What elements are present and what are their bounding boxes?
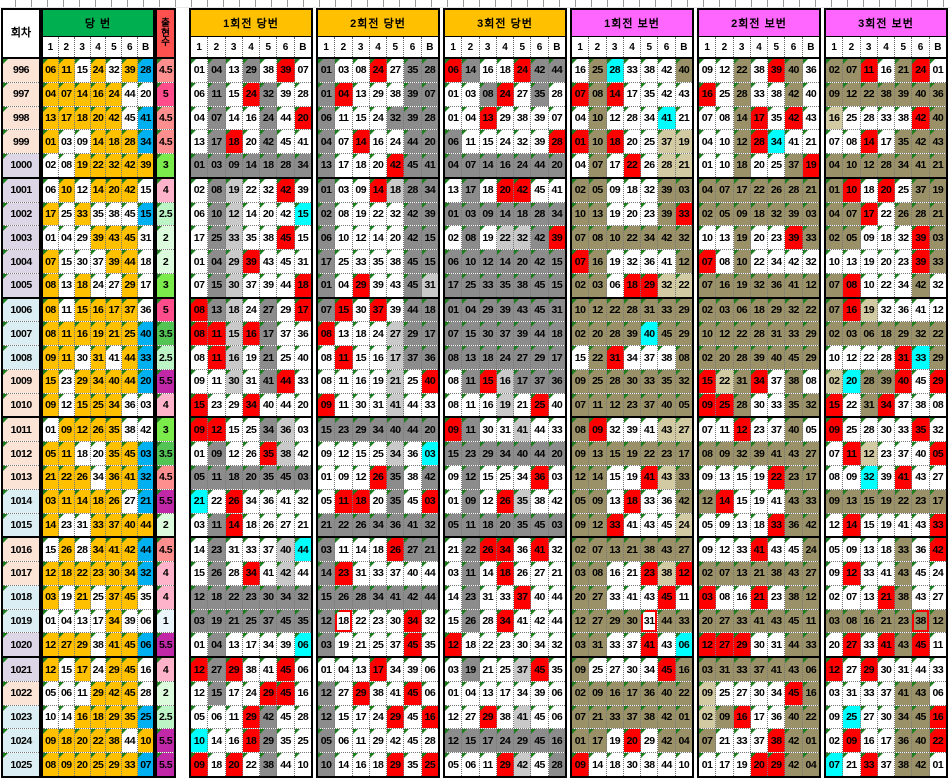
num-cell[interactable]: 35 <box>895 130 912 153</box>
num-cell[interactable]: 29 <box>676 322 692 345</box>
num-cell[interactable]: 27 <box>122 490 138 513</box>
num-cell[interactable]: 04 <box>208 59 225 82</box>
num-cell[interactable]: 16 <box>803 682 819 705</box>
num-cell[interactable]: 38 <box>895 107 912 130</box>
num-cell[interactable]: 19 <box>497 394 514 417</box>
num-cell[interactable]: 44 <box>531 418 548 441</box>
num-cell[interactable]: 31 <box>861 394 878 417</box>
num-cell[interactable]: 39 <box>785 203 802 226</box>
num-cell[interactable]: 20 <box>751 154 768 177</box>
num-cell[interactable]: 39 <box>658 179 675 202</box>
num-cell[interactable]: 42 <box>658 729 675 752</box>
num-cell[interactable]: 23 <box>751 418 768 441</box>
num-cell[interactable]: 25 <box>843 418 860 441</box>
num-cell[interactable]: 43 <box>895 633 912 656</box>
num-cell[interactable]: 34 <box>641 226 658 249</box>
num-cell[interactable]: 40 <box>138 322 153 345</box>
num-cell[interactable]: 17 <box>370 658 387 681</box>
num-cell[interactable]: 17 <box>43 203 59 226</box>
num-cell[interactable]: 04 <box>803 753 819 776</box>
num-cell[interactable]: 08 <box>43 753 59 776</box>
count-cell[interactable]: 3 <box>157 154 174 177</box>
num-cell[interactable]: 33 <box>930 658 946 681</box>
num-cell[interactable]: 34 <box>277 586 294 609</box>
num-cell[interactable]: 14 <box>191 538 208 561</box>
num-cell[interactable]: 20 <box>138 83 153 106</box>
num-cell[interactable]: 23 <box>641 203 658 226</box>
num-cell[interactable]: 25 <box>716 682 733 705</box>
num-cell[interactable]: 21 <box>930 154 946 177</box>
num-cell[interactable]: 16 <box>589 250 606 273</box>
num-cell[interactable]: 15 <box>607 466 624 489</box>
num-cell[interactable]: 27 <box>843 658 860 681</box>
num-cell[interactable]: 02 <box>699 562 716 585</box>
num-cell[interactable]: 03 <box>335 59 352 82</box>
num-cell[interactable]: 34 <box>895 154 912 177</box>
num-cell[interactable]: 03 <box>138 442 153 465</box>
num-cell[interactable]: 14 <box>462 59 479 82</box>
num-cell[interactable]: 14 <box>43 514 59 537</box>
num-cell[interactable]: 34 <box>641 107 658 130</box>
num-cell[interactable]: 15 <box>75 299 91 322</box>
num-cell[interactable]: 26 <box>514 562 531 585</box>
count-cell[interactable]: 2 <box>157 682 174 705</box>
num-cell[interactable]: 32 <box>676 370 692 393</box>
num-cell[interactable]: 19 <box>607 250 624 273</box>
num-cell[interactable]: 21 <box>480 658 497 681</box>
num-cell[interactable]: 10 <box>699 226 716 249</box>
num-cell[interactable]: 19 <box>75 154 91 177</box>
num-cell[interactable]: 14 <box>716 490 733 513</box>
num-cell[interactable]: 23 <box>768 586 785 609</box>
num-cell[interactable]: 45 <box>912 706 929 729</box>
num-cell[interactable]: 06 <box>138 633 153 656</box>
num-cell[interactable]: 27 <box>387 322 404 345</box>
num-cell[interactable]: 24 <box>91 658 107 681</box>
num-cell[interactable]: 03 <box>699 658 716 681</box>
num-cell[interactable]: 44 <box>138 538 153 561</box>
num-cell[interactable]: 21 <box>676 154 692 177</box>
num-cell[interactable]: 03 <box>295 418 311 441</box>
num-cell[interactable]: 24 <box>514 154 531 177</box>
num-cell[interactable]: 20 <box>260 203 277 226</box>
num-cell[interactable]: 07 <box>826 274 843 297</box>
num-cell[interactable]: 16 <box>607 682 624 705</box>
num-cell[interactable]: 40 <box>930 107 946 130</box>
num-cell[interactable]: 13 <box>480 682 497 705</box>
num-cell[interactable]: 31 <box>295 250 311 273</box>
num-cell[interactable]: 07 <box>589 538 606 561</box>
num-cell[interactable]: 04 <box>445 154 462 177</box>
num-cell[interactable]: 09 <box>191 418 208 441</box>
num-cell[interactable]: 18 <box>734 154 751 177</box>
num-cell[interactable]: 15 <box>335 706 352 729</box>
num-cell[interactable]: 02 <box>699 346 716 369</box>
num-cell[interactable]: 11 <box>208 466 225 489</box>
num-cell[interactable]: 09 <box>572 514 589 537</box>
num-cell[interactable]: 28 <box>549 83 565 106</box>
num-cell[interactable]: 40 <box>260 394 277 417</box>
num-cell[interactable]: 16 <box>353 370 370 393</box>
num-cell[interactable]: 22 <box>226 586 243 609</box>
num-cell[interactable]: 44 <box>531 322 548 345</box>
count-cell[interactable]: 5.5 <box>157 729 174 752</box>
num-cell[interactable]: 35 <box>122 706 138 729</box>
num-cell[interactable]: 45 <box>122 658 138 681</box>
num-cell[interactable]: 14 <box>480 154 497 177</box>
num-cell[interactable]: 40 <box>912 729 929 752</box>
num-cell[interactable]: 25 <box>243 610 260 633</box>
num-cell[interactable]: 28 <box>531 203 548 226</box>
num-cell[interactable]: 17 <box>260 322 277 345</box>
num-cell[interactable]: 12 <box>826 514 843 537</box>
num-cell[interactable]: 43 <box>785 658 802 681</box>
num-cell[interactable]: 17 <box>549 346 565 369</box>
num-cell[interactable]: 18 <box>75 442 91 465</box>
num-cell[interactable]: 28 <box>658 154 675 177</box>
num-cell[interactable]: 19 <box>243 346 260 369</box>
num-cell[interactable]: 42 <box>912 130 929 153</box>
num-cell[interactable]: 42 <box>785 107 802 130</box>
num-cell[interactable]: 07 <box>699 107 716 130</box>
num-cell[interactable]: 42 <box>404 226 421 249</box>
num-cell[interactable]: 32 <box>734 442 751 465</box>
num-cell[interactable]: 26 <box>59 538 75 561</box>
num-cell[interactable]: 11 <box>59 299 75 322</box>
round-cell[interactable]: 1019 <box>3 610 39 633</box>
num-cell[interactable]: 12 <box>353 226 370 249</box>
num-cell[interactable]: 29 <box>768 753 785 776</box>
num-cell[interactable]: 34 <box>497 538 514 561</box>
num-cell[interactable]: 31 <box>768 322 785 345</box>
num-cell[interactable]: 29 <box>861 658 878 681</box>
num-cell[interactable]: 29 <box>387 706 404 729</box>
num-cell[interactable]: 07 <box>318 299 335 322</box>
num-cell[interactable]: 36 <box>803 59 819 82</box>
num-cell[interactable]: 17 <box>497 682 514 705</box>
num-cell[interactable]: 34 <box>404 610 421 633</box>
num-cell[interactable]: 13 <box>226 633 243 656</box>
num-cell[interactable]: 38 <box>641 753 658 776</box>
num-cell[interactable]: 36 <box>138 299 153 322</box>
num-cell[interactable]: 22 <box>878 203 895 226</box>
num-cell[interactable]: 11 <box>226 706 243 729</box>
num-cell[interactable]: 12 <box>480 490 497 513</box>
num-cell[interactable]: 28 <box>422 59 438 82</box>
num-cell[interactable]: 33 <box>226 226 243 249</box>
num-cell[interactable]: 33 <box>607 586 624 609</box>
num-cell[interactable]: 26 <box>226 490 243 513</box>
num-cell[interactable]: 04 <box>59 226 75 249</box>
num-cell[interactable]: 29 <box>353 274 370 297</box>
num-cell[interactable]: 12 <box>699 490 716 513</box>
num-cell[interactable]: 18 <box>607 130 624 153</box>
num-cell[interactable]: 25 <box>138 706 153 729</box>
num-cell[interactable]: 03 <box>549 514 565 537</box>
num-cell[interactable]: 05 <box>43 682 59 705</box>
num-cell[interactable]: 24 <box>912 59 929 82</box>
num-cell[interactable]: 19 <box>930 179 946 202</box>
num-cell[interactable]: 08 <box>676 346 692 369</box>
num-cell[interactable]: 21 <box>445 538 462 561</box>
num-cell[interactable]: 34 <box>624 346 641 369</box>
num-cell[interactable]: 24 <box>370 59 387 82</box>
num-cell[interactable]: 41 <box>295 130 311 153</box>
num-cell[interactable]: 28 <box>861 107 878 130</box>
num-cell[interactable]: 30 <box>624 658 641 681</box>
num-cell[interactable]: 43 <box>912 586 929 609</box>
num-cell[interactable]: 17 <box>751 706 768 729</box>
num-cell[interactable]: 03 <box>191 514 208 537</box>
num-cell[interactable]: 16 <box>716 274 733 297</box>
num-cell[interactable]: 41 <box>658 107 675 130</box>
num-cell[interactable]: 21 <box>226 610 243 633</box>
num-cell[interactable]: 33 <box>243 538 260 561</box>
num-cell[interactable]: 29 <box>803 346 819 369</box>
num-cell[interactable]: 02 <box>699 299 716 322</box>
num-cell[interactable]: 18 <box>497 562 514 585</box>
num-cell[interactable]: 16 <box>226 346 243 369</box>
round-cell[interactable]: 1022 <box>3 682 39 705</box>
num-cell[interactable]: 33 <box>930 514 946 537</box>
num-cell[interactable]: 27 <box>404 538 421 561</box>
num-cell[interactable]: 45 <box>531 729 548 752</box>
num-cell[interactable]: 27 <box>716 610 733 633</box>
num-cell[interactable]: 21 <box>589 706 606 729</box>
num-cell[interactable]: 23 <box>768 226 785 249</box>
num-cell[interactable]: 14 <box>353 538 370 561</box>
count-cell[interactable]: 4 <box>157 586 174 609</box>
num-cell[interactable]: 12 <box>734 130 751 153</box>
num-cell[interactable]: 06 <box>422 658 438 681</box>
num-cell[interactable]: 12 <box>318 706 335 729</box>
num-cell[interactable]: 39 <box>912 226 929 249</box>
num-cell[interactable]: 36 <box>768 274 785 297</box>
num-cell[interactable]: 34 <box>751 370 768 393</box>
num-cell[interactable]: 09 <box>826 418 843 441</box>
num-cell[interactable]: 41 <box>624 586 641 609</box>
num-cell[interactable]: 05 <box>676 394 692 417</box>
num-cell[interactable]: 01 <box>676 706 692 729</box>
num-cell[interactable]: 19 <box>480 226 497 249</box>
num-cell[interactable]: 15 <box>734 490 751 513</box>
num-cell[interactable]: 42 <box>277 562 294 585</box>
num-cell[interactable]: 17 <box>387 346 404 369</box>
num-cell[interactable]: 17 <box>335 154 352 177</box>
num-cell[interactable]: 09 <box>208 442 225 465</box>
num-cell[interactable]: 09 <box>75 130 91 153</box>
num-cell[interactable]: 38 <box>768 729 785 752</box>
num-cell[interactable]: 34 <box>531 633 548 656</box>
num-cell[interactable]: 24 <box>243 299 260 322</box>
round-cell[interactable]: 1003 <box>3 226 39 249</box>
num-cell[interactable]: 20 <box>878 250 895 273</box>
num-cell[interactable]: 33 <box>658 299 675 322</box>
num-cell[interactable]: 27 <box>514 83 531 106</box>
num-cell[interactable]: 32 <box>912 322 929 345</box>
num-cell[interactable]: 12 <box>676 562 692 585</box>
num-cell[interactable]: 42 <box>658 706 675 729</box>
num-cell[interactable]: 29 <box>260 682 277 705</box>
num-cell[interactable]: 06 <box>445 250 462 273</box>
count-cell[interactable]: 4 <box>157 179 174 202</box>
num-cell[interactable]: 12 <box>826 658 843 681</box>
num-cell[interactable]: 07 <box>572 226 589 249</box>
num-cell[interactable]: 11 <box>59 442 75 465</box>
num-cell[interactable]: 18 <box>208 586 225 609</box>
num-cell[interactable]: 14 <box>75 490 91 513</box>
num-cell[interactable]: 33 <box>607 706 624 729</box>
num-cell[interactable]: 30 <box>353 299 370 322</box>
num-cell[interactable]: 32 <box>295 586 311 609</box>
num-cell[interactable]: 29 <box>353 418 370 441</box>
num-cell[interactable]: 41 <box>624 514 641 537</box>
round-cell[interactable]: 1021 <box>3 658 39 681</box>
num-cell[interactable]: 09 <box>843 729 860 752</box>
num-cell[interactable]: 35 <box>531 83 548 106</box>
num-cell[interactable]: 09 <box>191 753 208 776</box>
num-cell[interactable]: 06 <box>59 682 75 705</box>
num-cell[interactable]: 38 <box>658 562 675 585</box>
num-cell[interactable]: 29 <box>641 729 658 752</box>
num-cell[interactable]: 20 <box>549 154 565 177</box>
num-cell[interactable]: 34 <box>387 442 404 465</box>
num-cell[interactable]: 45 <box>912 633 929 656</box>
round-cell[interactable]: 1025 <box>3 753 39 776</box>
num-cell[interactable]: 24 <box>930 562 946 585</box>
num-cell[interactable]: 34 <box>370 514 387 537</box>
num-cell[interactable]: 33 <box>768 514 785 537</box>
num-cell[interactable]: 10 <box>138 729 153 752</box>
num-cell[interactable]: 08 <box>445 346 462 369</box>
num-cell[interactable]: 35 <box>514 514 531 537</box>
num-cell[interactable]: 05 <box>445 514 462 537</box>
num-cell[interactable]: 36 <box>785 514 802 537</box>
num-cell[interactable]: 08 <box>59 154 75 177</box>
num-cell[interactable]: 06 <box>607 274 624 297</box>
num-cell[interactable]: 29 <box>243 706 260 729</box>
num-cell[interactable]: 33 <box>549 418 565 441</box>
num-cell[interactable]: 17 <box>295 299 311 322</box>
num-cell[interactable]: 32 <box>676 226 692 249</box>
num-cell[interactable]: 37 <box>91 250 107 273</box>
num-cell[interactable]: 06 <box>191 83 208 106</box>
num-cell[interactable]: 12 <box>843 562 860 585</box>
num-cell[interactable]: 14 <box>75 83 91 106</box>
num-cell[interactable]: 20 <box>370 490 387 513</box>
num-cell[interactable]: 13 <box>861 538 878 561</box>
num-cell[interactable]: 16 <box>226 729 243 752</box>
num-cell[interactable]: 19 <box>91 322 107 345</box>
num-cell[interactable]: 45 <box>658 322 675 345</box>
num-cell[interactable]: 33 <box>624 59 641 82</box>
num-cell[interactable]: 32 <box>768 203 785 226</box>
round-cell[interactable]: 1014 <box>3 490 39 513</box>
num-cell[interactable]: 32 <box>260 83 277 106</box>
num-cell[interactable]: 13 <box>734 514 751 537</box>
num-cell[interactable]: 33 <box>930 250 946 273</box>
num-cell[interactable]: 42 <box>531 226 548 249</box>
num-cell[interactable]: 23 <box>895 610 912 633</box>
num-cell[interactable]: 29 <box>930 346 946 369</box>
num-cell[interactable]: 17 <box>514 370 531 393</box>
num-cell[interactable]: 13 <box>843 250 860 273</box>
num-cell[interactable]: 30 <box>751 394 768 417</box>
num-cell[interactable]: 33 <box>734 729 751 752</box>
num-cell[interactable]: 35 <box>277 729 294 752</box>
num-cell[interactable]: 09 <box>607 179 624 202</box>
num-cell[interactable]: 22 <box>607 299 624 322</box>
num-cell[interactable]: 17 <box>462 179 479 202</box>
num-cell[interactable]: 41 <box>768 490 785 513</box>
num-cell[interactable]: 44 <box>122 370 138 393</box>
num-cell[interactable]: 13 <box>335 322 352 345</box>
num-cell[interactable]: 07 <box>826 299 843 322</box>
num-cell[interactable]: 43 <box>658 538 675 561</box>
num-cell[interactable]: 43 <box>658 466 675 489</box>
num-cell[interactable]: 29 <box>480 299 497 322</box>
count-cell[interactable]: 5.5 <box>157 753 174 776</box>
num-cell[interactable]: 18 <box>353 154 370 177</box>
num-cell[interactable]: 05 <box>803 418 819 441</box>
num-cell[interactable]: 18 <box>624 490 641 513</box>
num-cell[interactable]: 44 <box>549 610 565 633</box>
num-cell[interactable]: 06 <box>462 753 479 776</box>
num-cell[interactable]: 17 <box>318 250 335 273</box>
num-cell[interactable]: 36 <box>106 466 122 489</box>
num-cell[interactable]: 35 <box>422 633 438 656</box>
num-cell[interactable]: 40 <box>912 83 929 106</box>
num-cell[interactable]: 44 <box>295 562 311 585</box>
num-cell[interactable]: 18 <box>59 729 75 752</box>
num-cell[interactable]: 39 <box>531 107 548 130</box>
num-cell[interactable]: 14 <box>91 130 107 153</box>
num-cell[interactable]: 28 <box>878 154 895 177</box>
num-cell[interactable]: 10 <box>676 753 692 776</box>
num-cell[interactable]: 19 <box>878 514 895 537</box>
count-cell[interactable]: 5 <box>157 83 174 106</box>
num-cell[interactable]: 33 <box>676 203 692 226</box>
num-cell[interactable]: 15 <box>422 226 438 249</box>
num-cell[interactable]: 25 <box>370 633 387 656</box>
round-cell[interactable]: 1004 <box>3 250 39 273</box>
num-cell[interactable]: 22 <box>878 274 895 297</box>
num-cell[interactable]: 26 <box>335 586 352 609</box>
num-cell[interactable]: 13 <box>607 538 624 561</box>
num-cell[interactable]: 25 <box>122 322 138 345</box>
num-cell[interactable]: 30 <box>260 586 277 609</box>
num-cell[interactable]: 05 <box>843 226 860 249</box>
num-cell[interactable]: 33 <box>734 658 751 681</box>
num-cell[interactable]: 44 <box>404 299 421 322</box>
num-cell[interactable]: 36 <box>895 299 912 322</box>
num-cell[interactable]: 35 <box>370 250 387 273</box>
num-cell[interactable]: 22 <box>768 466 785 489</box>
num-cell[interactable]: 12 <box>59 394 75 417</box>
num-cell[interactable]: 03 <box>572 633 589 656</box>
num-cell[interactable]: 07 <box>843 203 860 226</box>
count-cell[interactable]: 4 <box>157 394 174 417</box>
num-cell[interactable]: 01 <box>445 299 462 322</box>
num-cell[interactable]: 01 <box>572 130 589 153</box>
num-cell[interactable]: 20 <box>716 346 733 369</box>
num-cell[interactable]: 24 <box>370 322 387 345</box>
num-cell[interactable]: 01 <box>930 753 946 776</box>
num-cell[interactable]: 17 <box>75 658 91 681</box>
num-cell[interactable]: 27 <box>277 514 294 537</box>
num-cell[interactable]: 39 <box>404 83 421 106</box>
num-cell[interactable]: 18 <box>91 490 107 513</box>
